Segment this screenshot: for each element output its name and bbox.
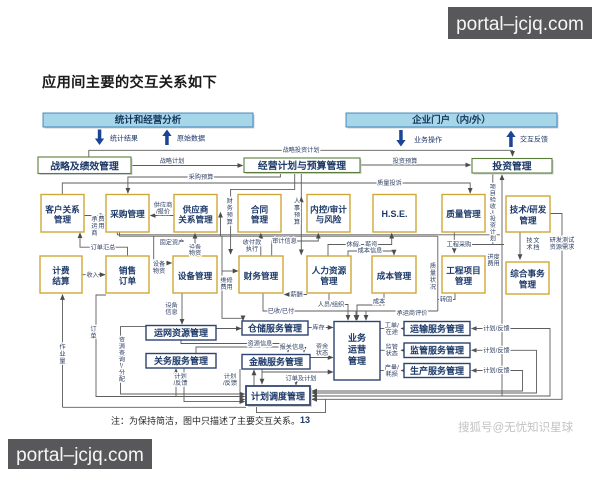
- svg-text:计划/反馈: 计划/反馈: [483, 347, 509, 355]
- svg-text:管理: 管理: [54, 214, 72, 225]
- svg-text:监管服务管理: 监管服务管理: [410, 345, 464, 356]
- svg-text:统计和经营分析: 统计和经营分析: [115, 114, 182, 126]
- svg-text:/反馈: /反馈: [223, 379, 237, 387]
- svg-text:管理: 管理: [519, 215, 537, 226]
- svg-text:术: 术: [526, 244, 532, 252]
- svg-text:物资: 物资: [189, 249, 201, 257]
- svg-text:订单汇总: 订单汇总: [91, 243, 116, 251]
- svg-text:统计结果: 统计结果: [110, 133, 138, 142]
- svg-text:计划/反馈: 计划/反馈: [483, 367, 509, 375]
- svg-text:预: 预: [294, 211, 300, 219]
- svg-text:配: 配: [119, 376, 125, 383]
- svg-text:企业门户（内/外）: 企业门户（内/外）: [411, 114, 491, 126]
- svg-text:投资预算: 投资预算: [393, 157, 418, 165]
- svg-text:内控/审计: 内控/审计: [310, 204, 347, 215]
- svg-text:财: 财: [227, 197, 233, 205]
- svg-text:耗损: 耗损: [386, 370, 398, 378]
- svg-text:算: 算: [227, 218, 233, 226]
- svg-text:资源信息: 资源信息: [248, 340, 273, 348]
- svg-text:作: 作: [59, 343, 65, 351]
- svg-text:搜狐号@无忧知识星球: 搜狐号@无忧知识星球: [458, 420, 574, 434]
- svg-text:注：为保持简洁，图中只描述了主要交互关系。13: 注：为保持简洁，图中只描述了主要交互关系。13: [111, 415, 310, 426]
- svg-text:人员/组织: 人员/组织: [318, 301, 344, 309]
- svg-text:已收/已付: 已收/已付: [268, 307, 294, 315]
- svg-text:计划调度管理: 计划调度管理: [251, 391, 305, 402]
- svg-text:承: 承: [91, 215, 97, 223]
- svg-text:预: 预: [227, 211, 233, 219]
- svg-text:供应商: 供应商: [182, 204, 209, 215]
- svg-text:关系管理: 关系管理: [178, 214, 213, 225]
- svg-text:财务管理: 财务管理: [243, 270, 279, 281]
- svg-text:结算: 结算: [52, 275, 70, 286]
- svg-text:关务服务管理: 关务服务管理: [154, 355, 208, 366]
- svg-text:经营计划与预算管理: 经营计划与预算管理: [258, 159, 346, 172]
- svg-text:划: 划: [490, 235, 496, 243]
- svg-text:战略计划: 战略计划: [160, 157, 185, 165]
- svg-text:资源需求: 资源需求: [550, 243, 575, 251]
- svg-text:原始数据: 原始数据: [177, 133, 205, 142]
- svg-text:质量管理: 质量管理: [446, 208, 481, 219]
- svg-text:工程采购: 工程采购: [447, 241, 472, 249]
- svg-text:投资管理: 投资管理: [492, 159, 531, 172]
- svg-text:转固: 转固: [440, 296, 452, 304]
- svg-text:成本管理: 成本管理: [377, 270, 412, 281]
- svg-text:销售: 销售: [119, 265, 136, 276]
- svg-text:档: 档: [533, 244, 539, 252]
- svg-text:业务操作: 业务操作: [414, 135, 442, 144]
- svg-text:合同: 合同: [251, 204, 269, 215]
- svg-text:设备: 设备: [153, 260, 166, 268]
- svg-text:运营: 运营: [348, 344, 366, 355]
- svg-text:物资: 物资: [153, 267, 165, 275]
- svg-text:工程项目: 工程项目: [446, 265, 480, 276]
- svg-text:固定资产: 固定资产: [160, 239, 185, 247]
- svg-text:文: 文: [533, 237, 539, 245]
- svg-text:质: 质: [430, 262, 436, 270]
- svg-text:金融服务管理: 金融服务管理: [248, 356, 303, 367]
- svg-text:战略及绩效管理: 战略及绩效管理: [50, 160, 119, 173]
- svg-text:管理: 管理: [348, 355, 366, 366]
- svg-text:管理: 管理: [519, 279, 537, 290]
- svg-text:订单及计划: 订单及计划: [286, 375, 317, 383]
- svg-text:成本: 成本: [373, 298, 385, 306]
- svg-text:技: 技: [526, 237, 532, 245]
- svg-text:计划/反馈: 计划/反馈: [483, 325, 509, 333]
- svg-text:单: 单: [90, 332, 96, 340]
- svg-text:费: 费: [98, 215, 104, 223]
- svg-text:信息: 信息: [165, 308, 177, 316]
- svg-text:技术/研发: 技术/研发: [510, 204, 547, 215]
- svg-text:承运商评价: 承运商评价: [397, 309, 428, 317]
- svg-text:生产服务管理: 生产服务管理: [410, 365, 464, 376]
- svg-text:业: 业: [59, 350, 65, 358]
- svg-text:portal–jcjq.com: portal–jcjq.com: [456, 14, 584, 35]
- svg-text:/反馈: /反馈: [173, 379, 187, 387]
- svg-text:采购管理: 采购管理: [109, 208, 145, 219]
- svg-text:收入: 收入: [86, 271, 98, 279]
- svg-text:订: 订: [90, 326, 96, 333]
- svg-text:薪酬: 薪酬: [290, 291, 302, 299]
- svg-text:设备管理: 设备管理: [178, 270, 213, 281]
- svg-text:运输服务管理: 运输服务管理: [410, 323, 464, 334]
- svg-text:算: 算: [294, 218, 300, 226]
- svg-text:审计信息: 审计信息: [272, 237, 297, 245]
- svg-text:业务: 业务: [348, 332, 367, 343]
- svg-text:运: 运: [91, 222, 97, 230]
- svg-text:人力资源: 人力资源: [312, 265, 347, 276]
- svg-text:费用: 费用: [487, 260, 499, 268]
- svg-text:务: 务: [227, 204, 233, 212]
- svg-text:/报价: /报价: [156, 208, 170, 216]
- svg-text:采购预算: 采购预算: [189, 173, 214, 181]
- svg-text:量: 量: [59, 358, 65, 365]
- svg-text:战略投资计划: 战略投资计划: [282, 146, 319, 154]
- svg-text:管理: 管理: [455, 275, 473, 286]
- svg-text:量: 量: [430, 270, 436, 277]
- svg-text:况: 况: [430, 284, 436, 291]
- svg-text:仓储服务管理: 仓储服务管理: [247, 322, 302, 333]
- svg-text:管理: 管理: [320, 275, 338, 286]
- svg-text:报关信息: 报关信息: [280, 343, 305, 351]
- svg-text:客户关系: 客户关系: [44, 204, 80, 215]
- svg-text:状: 状: [430, 276, 437, 284]
- svg-text:与风险: 与风险: [316, 214, 342, 225]
- svg-text:订单: 订单: [119, 275, 137, 286]
- svg-text:应用间主要的交互关系如下: 应用间主要的交互关系如下: [42, 74, 217, 91]
- svg-text:状态: 状态: [316, 349, 328, 357]
- svg-text:H.S.E.: H.S.E.: [381, 209, 407, 219]
- svg-text:质量投诉: 质量投诉: [377, 179, 402, 187]
- svg-text:portal–jcjq.com: portal–jcjq.com: [16, 445, 144, 466]
- svg-text:事: 事: [294, 204, 300, 212]
- svg-text:交互反馈: 交互反馈: [520, 134, 548, 143]
- svg-text:运网资源管理: 运网资源管理: [154, 327, 208, 338]
- svg-text:状态: 状态: [386, 350, 398, 358]
- svg-text:研发测试: 研发测试: [550, 236, 575, 244]
- svg-text:综合事务: 综合事务: [510, 268, 545, 279]
- svg-text:库存: 库存: [312, 324, 324, 332]
- svg-text:管理: 管理: [251, 214, 269, 225]
- svg-text:在途: 在途: [386, 328, 398, 336]
- svg-text:费用: 费用: [220, 283, 232, 291]
- svg-text:成本信息: 成本信息: [358, 247, 383, 255]
- svg-text:人: 人: [294, 198, 300, 205]
- svg-text:商: 商: [91, 229, 97, 237]
- svg-text:用: 用: [98, 223, 104, 230]
- svg-text:计费: 计费: [52, 265, 70, 276]
- svg-text:执行: 执行: [246, 245, 258, 253]
